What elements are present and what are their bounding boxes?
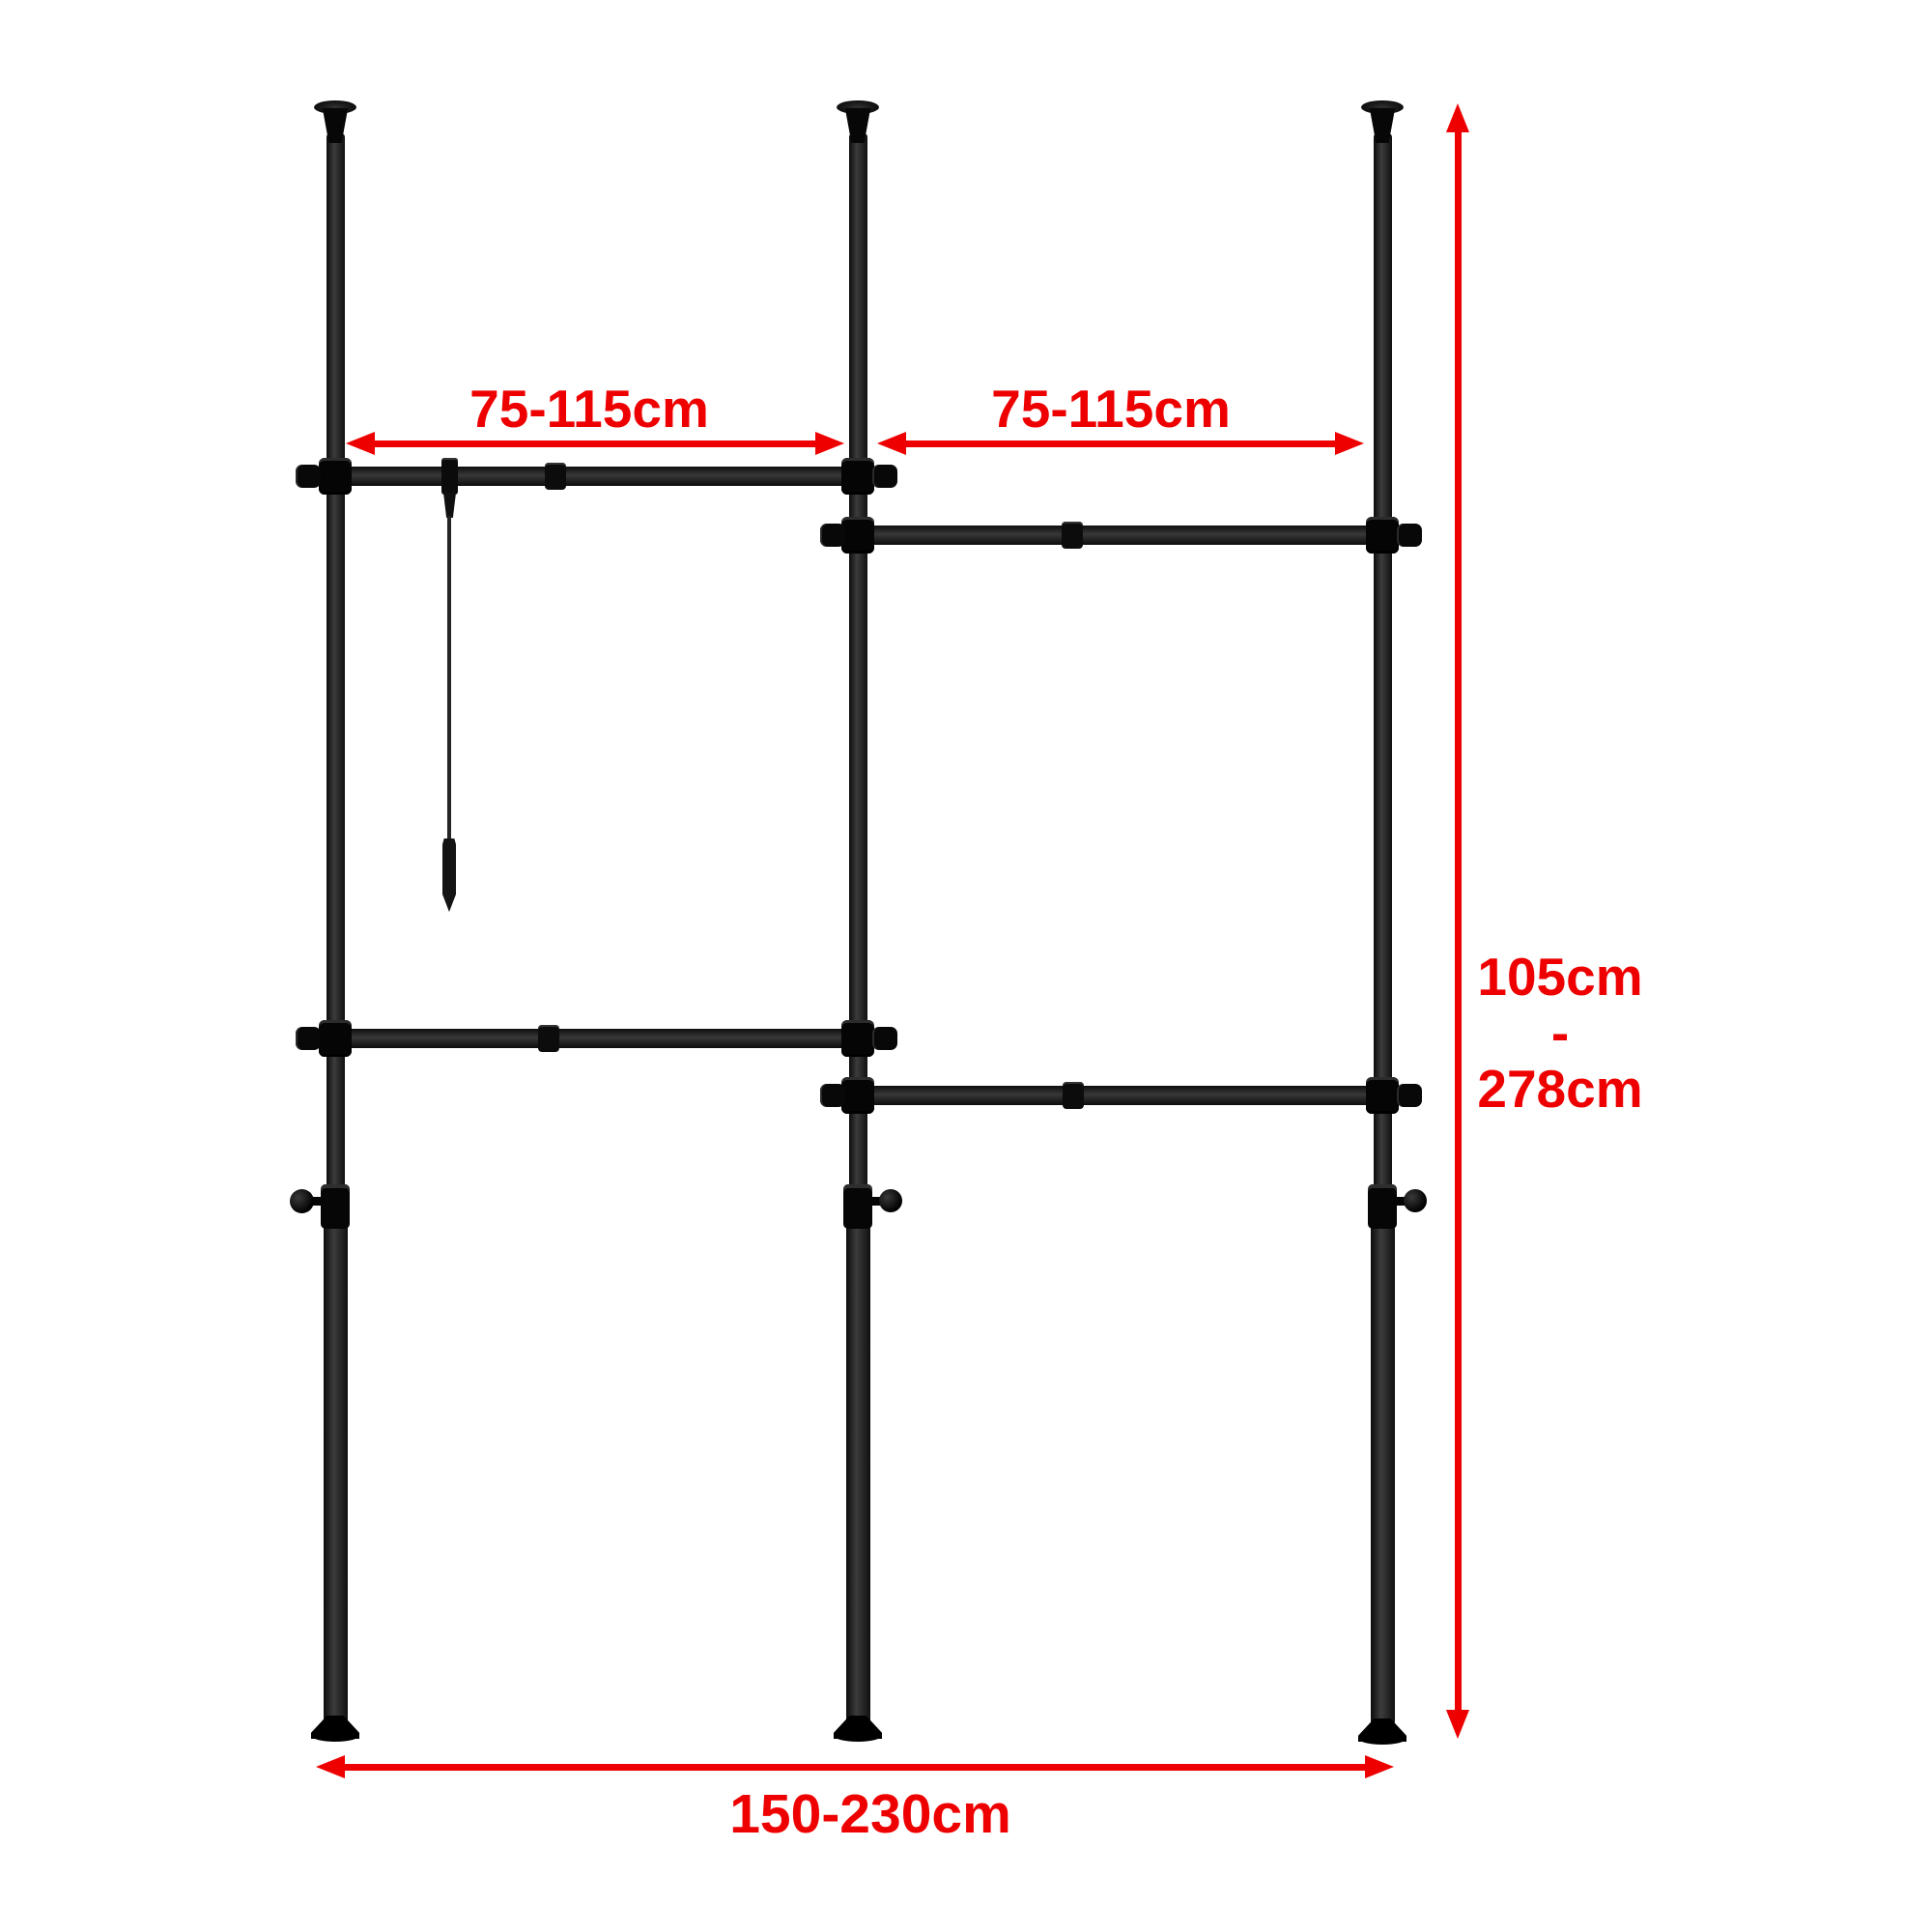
left-span-dimension-label: 75-115cm — [469, 383, 709, 436]
center-pole-lower-tube — [846, 1225, 870, 1723]
left-pole-foot-base — [311, 1729, 359, 1742]
rail-stub — [872, 1027, 897, 1050]
lower-right-rail — [858, 1086, 1382, 1105]
center-pole-foot-base — [834, 1729, 882, 1742]
rail-stub — [296, 1027, 321, 1050]
left-pole-upper-tube — [327, 133, 345, 1227]
right-pole-tension-coupling — [1368, 1184, 1397, 1229]
right-pole-upper-tube — [1374, 133, 1392, 1227]
left-span-arrowhead-right-icon — [815, 432, 844, 455]
upper-right-rail — [858, 526, 1382, 545]
rail-stub — [1397, 524, 1422, 547]
center-pole-cap-neck — [843, 108, 872, 143]
right-pole-cap-neck — [1368, 108, 1397, 143]
height-separator-label: - — [1477, 1005, 1642, 1061]
rail-stub — [872, 465, 897, 488]
rail-stub — [820, 1084, 845, 1107]
right-pole-lower-tube — [1371, 1225, 1395, 1725]
height-max-label: 278cm — [1477, 1061, 1642, 1117]
hanger-strap-clamp — [441, 458, 458, 495]
height-min-label: 105cm — [1477, 949, 1642, 1005]
width-arrow-line — [341, 1764, 1369, 1771]
right-span-arrow-line — [902, 440, 1339, 447]
right-span-arrowhead-right-icon — [1335, 432, 1364, 455]
tee-connector — [841, 517, 874, 554]
rail-sleeve — [545, 463, 566, 490]
right-pole-adjust-knob-icon — [1404, 1189, 1427, 1212]
left-pole-tension-coupling — [321, 1184, 350, 1229]
height-dimension-label: 105cm - 278cm — [1477, 949, 1642, 1117]
left-pole-adjust-knob-icon — [290, 1189, 314, 1213]
right-span-dimension-label: 75-115cm — [991, 383, 1231, 436]
upper-left-rail — [335, 467, 858, 486]
rail-sleeve — [1062, 522, 1083, 549]
hanger-strap-tip — [442, 838, 456, 912]
tee-connector — [841, 1020, 874, 1057]
diagram-canvas: 75-115cm 75-115cm 105cm - 278cm 150-230c… — [0, 0, 1932, 1932]
center-pole-upper-tube — [849, 133, 867, 1227]
height-arrowhead-bottom-icon — [1446, 1710, 1469, 1739]
tee-connector — [841, 458, 874, 495]
left-pole-lower-tube — [324, 1225, 348, 1723]
tee-connector — [841, 1077, 874, 1114]
center-pole-adjust-knob-icon — [879, 1189, 902, 1212]
left-span-arrow-line — [371, 440, 819, 447]
center-pole-tension-coupling — [843, 1184, 872, 1229]
tee-connector — [1366, 1077, 1399, 1114]
tee-connector — [1366, 517, 1399, 554]
tee-connector — [319, 458, 352, 495]
rail-sleeve — [1063, 1082, 1084, 1109]
rail-stub — [820, 524, 845, 547]
hanger-strap-cord — [447, 516, 451, 842]
left-pole-cap-neck — [321, 108, 350, 143]
height-arrow-line — [1455, 128, 1462, 1714]
tee-connector — [319, 1020, 352, 1057]
rail-stub — [296, 465, 321, 488]
right-pole-foot-base — [1358, 1732, 1406, 1745]
width-arrowhead-right-icon — [1365, 1755, 1394, 1778]
lower-left-rail — [335, 1029, 858, 1048]
rail-stub — [1397, 1084, 1422, 1107]
total-width-dimension-label: 150-230cm — [729, 1787, 1011, 1842]
hanger-strap-taper — [443, 493, 456, 518]
rail-sleeve — [538, 1025, 559, 1052]
